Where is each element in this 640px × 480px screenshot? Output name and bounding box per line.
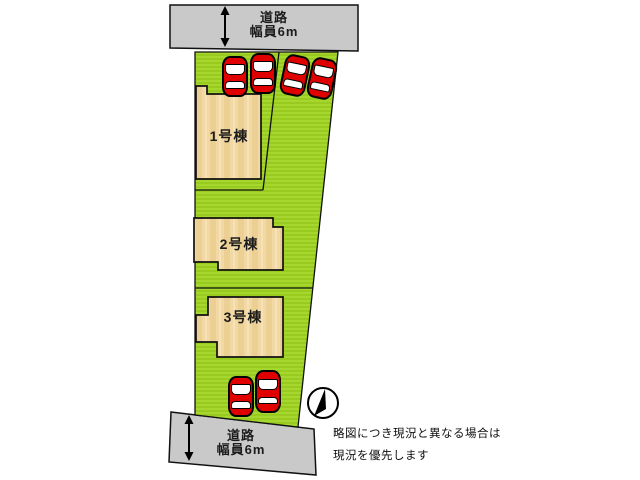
road-bottom-label-line1: 道路 [193, 429, 289, 443]
road-top-label-line2: 幅員6m [226, 25, 322, 39]
site-plan-image: 道路 幅員6m 道路 幅員6m 1号棟 2号棟 3号棟 略図につき現況と異なる場… [0, 0, 640, 480]
car-icon [222, 56, 248, 97]
road-top-label: 道路 幅員6m [226, 11, 322, 38]
car-icon [228, 376, 254, 417]
building-1-label: 1号棟 [210, 126, 249, 146]
disclaimer-line2: 現況を優先します [333, 445, 501, 467]
road-bottom-label: 道路 幅員6m [193, 429, 289, 456]
building-3-label: 3号棟 [224, 307, 263, 327]
building-2-label: 2号棟 [220, 234, 259, 254]
car-icon [250, 53, 276, 94]
road-top-label-line1: 道路 [226, 11, 322, 25]
disclaimer-note: 略図につき現況と異なる場合は 現況を優先します [333, 423, 501, 467]
disclaimer-line1: 略図につき現況と異なる場合は [333, 423, 501, 445]
north-compass-icon [308, 388, 338, 418]
road-bottom-label-line2: 幅員6m [193, 443, 289, 457]
car-icon [255, 370, 281, 413]
